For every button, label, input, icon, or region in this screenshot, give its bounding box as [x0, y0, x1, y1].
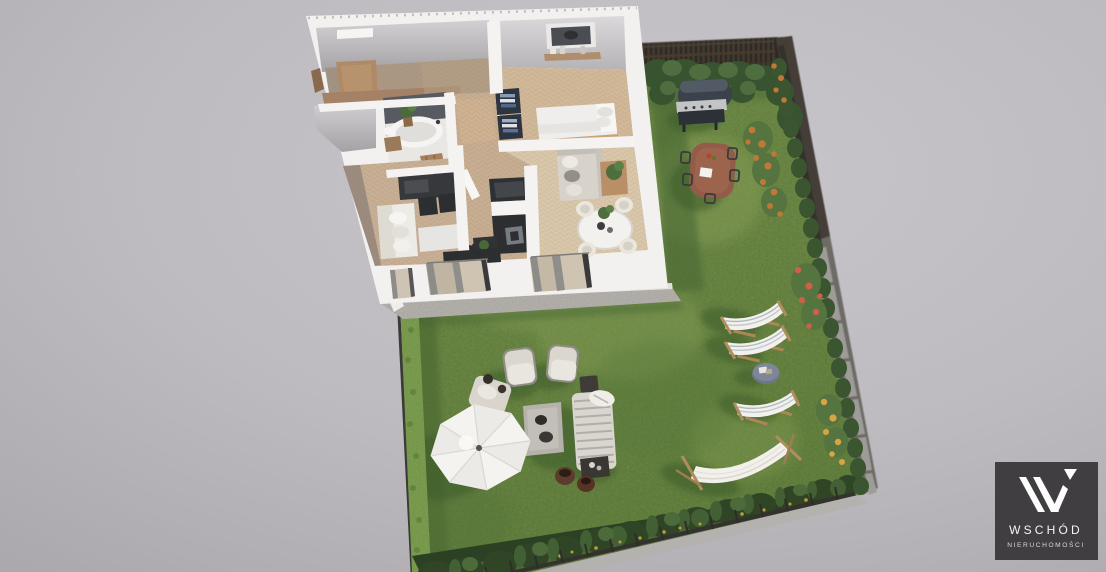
svg-text:WSCHÓD: WSCHÓD	[1009, 522, 1083, 537]
svg-text:NIERUCHOMOŚCI: NIERUCHOMOŚCI	[1007, 540, 1085, 549]
